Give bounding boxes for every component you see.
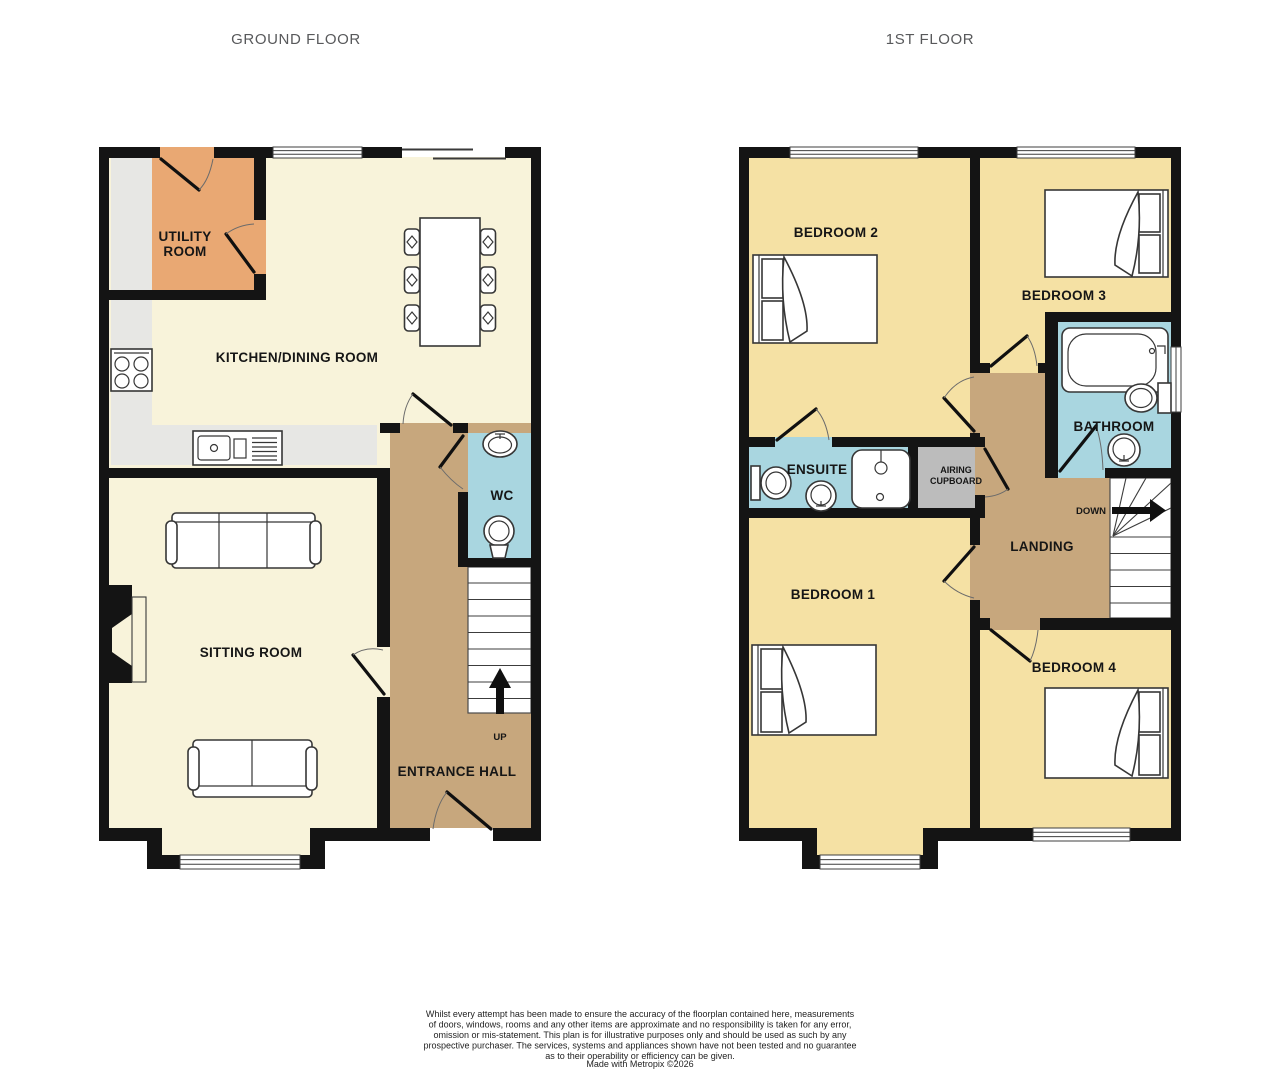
first-floor-plan: BEDROOM 2 BEDROOM 3 BATHROOM ENSUITE AIR…	[739, 147, 1181, 869]
bedroom2-label: BEDROOM 2	[794, 225, 878, 240]
ensuite-toilet-icon	[751, 466, 791, 500]
down-label: DOWN	[1076, 506, 1106, 517]
metropix-credit: Made with Metropix ©2026	[586, 1059, 693, 1069]
sitting-room-label: SITTING ROOM	[200, 645, 303, 660]
kitchen-sink-icon	[193, 431, 282, 465]
bedroom4-window	[1033, 828, 1130, 841]
airing-door-gap	[975, 447, 985, 495]
bedroom1-label: BEDROOM 1	[791, 587, 876, 602]
bathroom-side-window	[1171, 347, 1181, 412]
dining-table-icon	[405, 218, 496, 346]
sofa-2seat-icon	[188, 740, 317, 797]
bedroom3-label: BEDROOM 3	[1022, 288, 1107, 303]
bedroom2-window	[790, 147, 918, 158]
bed-bedroom3-icon	[1045, 190, 1168, 277]
bedroom1-door-gap	[970, 545, 980, 600]
disclaimer-line-4: prospective purchaser. The services, sys…	[423, 1041, 856, 1051]
ground-floor-plan: UTILITY ROOM KITCHEN/DINING ROOM WC SITT…	[99, 147, 541, 869]
entrance-hall-label: ENTRANCE HALL	[398, 764, 517, 779]
ground-floor-title: GROUND FLOOR	[231, 31, 361, 48]
bedroom3-window	[1017, 147, 1135, 158]
bathroom-door-gap	[1058, 468, 1105, 478]
disclaimer-line-3: omission or mis-statement. This plan is …	[433, 1030, 847, 1040]
bathroom-toilet-icon	[1125, 383, 1171, 413]
disclaimer-line-1: Whilst every attempt has been made to en…	[426, 1009, 855, 1019]
ensuite-basin-icon	[806, 481, 836, 511]
ensuite-label: ENSUITE	[787, 462, 848, 477]
bed-bedroom2-icon	[753, 255, 877, 343]
hob-icon	[111, 349, 152, 391]
shower-icon	[852, 450, 910, 508]
disclaimer: Whilst every attempt has been made to en…	[423, 1009, 856, 1069]
kitchen-window	[273, 147, 362, 158]
stairs-down-floor	[1110, 478, 1171, 618]
wc-label: WC	[490, 488, 513, 503]
bay-window-first	[820, 855, 920, 869]
disclaimer-line-2: of doors, windows, rooms and any other i…	[429, 1020, 852, 1030]
bathroom-basin-icon	[1108, 434, 1140, 466]
ensuite-door-gap	[775, 437, 832, 447]
bedroom4-label: BEDROOM 4	[1032, 660, 1117, 675]
floorplan-page: GROUND FLOOR 1ST FLOOR	[0, 0, 1280, 1069]
bath-icon	[1062, 328, 1168, 392]
front-door-opening	[430, 828, 493, 841]
bed-bedroom4-icon	[1045, 688, 1168, 778]
utility-room-label-2: ROOM	[163, 244, 206, 259]
utility-back-door-gap	[160, 147, 214, 160]
bedroom2-door-gap	[970, 373, 980, 433]
bed-bedroom1-icon	[752, 645, 876, 735]
utility-room-label-1: UTILITY	[158, 229, 211, 244]
utility-door-gap	[254, 220, 266, 274]
sofa-3seat-icon	[166, 513, 321, 568]
first-floor-title: 1ST FLOOR	[886, 31, 974, 48]
floorplan-canvas: GROUND FLOOR 1ST FLOOR	[0, 0, 1280, 1069]
wc-basin-icon	[483, 431, 517, 457]
airing-cupboard-label-2: CUPBOARD	[930, 476, 983, 486]
kitchen-counter-left	[111, 157, 152, 465]
bay-window-ground	[180, 855, 300, 869]
bathroom-label: BATHROOM	[1074, 419, 1155, 434]
bedroom4-door-gap	[990, 618, 1040, 630]
kitchen-label: KITCHEN/DINING ROOM	[216, 350, 378, 365]
utility-room-floor	[152, 157, 254, 290]
airing-cupboard-label-1: AIRING	[940, 465, 972, 475]
bay-floor	[162, 828, 310, 855]
landing-label: LANDING	[1010, 539, 1074, 554]
up-label: UP	[493, 732, 507, 743]
bay-floor-first	[817, 828, 923, 855]
